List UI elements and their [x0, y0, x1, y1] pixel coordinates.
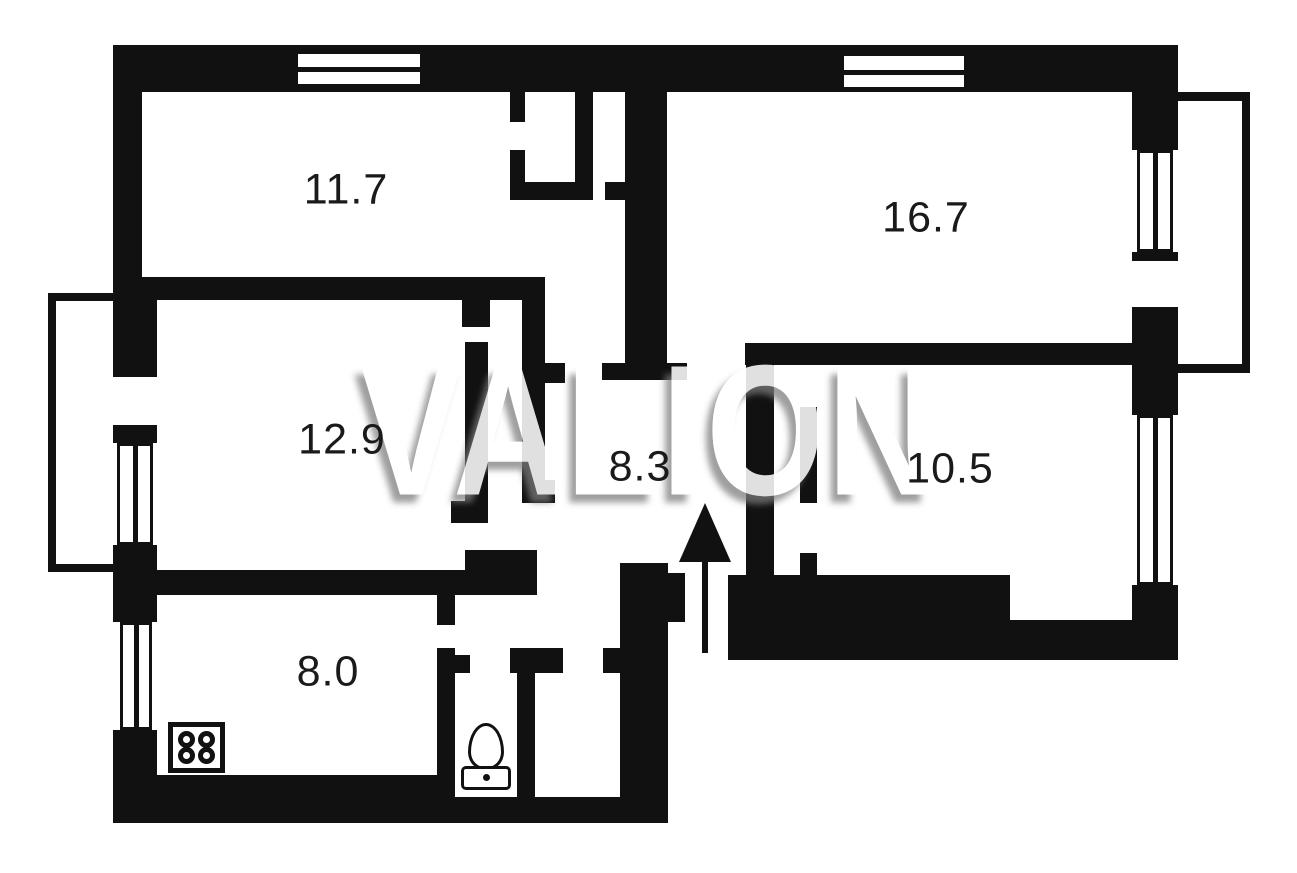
wall-kitchen-east-lower: [437, 648, 455, 797]
window-right-lower-icon: [1137, 415, 1173, 585]
wall-corridor-east: [620, 563, 668, 823]
wall-right-upper: [1132, 92, 1178, 150]
window-pane-divider: [133, 446, 138, 542]
window-pane-divider: [134, 625, 139, 727]
wall-bath-door-frame: [603, 648, 620, 673]
stove-burner-icon: [178, 731, 195, 748]
balcony-right-top: [1178, 92, 1250, 101]
stove-burner-icon: [198, 731, 215, 748]
window-pane-divider: [844, 70, 964, 75]
window-left-middle-icon: [117, 443, 153, 545]
wall-kitchen-door-frame: [455, 655, 470, 673]
wall-10-5-bottom-left: [728, 575, 1010, 660]
window-pane-divider: [1153, 153, 1158, 249]
entrance-arrow-icon: [679, 503, 731, 562]
window-pane-divider: [298, 67, 420, 72]
balcony-right-side: [1242, 92, 1250, 373]
window-top-right-icon: [841, 53, 967, 90]
wall-niche-stub-top: [510, 90, 525, 122]
wall-stub-below-11-7: [462, 298, 490, 327]
balcony-left-side: [48, 293, 56, 572]
window-right-upper-icon: [1137, 150, 1173, 252]
stove-burner-icon: [198, 747, 215, 764]
wall-wc-divider: [517, 670, 535, 797]
wall-top: [113, 45, 1178, 92]
label-room-12-9: 12.9: [298, 416, 386, 465]
label-room-11-7: 11.7: [304, 166, 389, 215]
wall-left-upper: [113, 92, 142, 280]
stove-burner-icon: [178, 747, 195, 764]
window-pane-divider: [1153, 418, 1158, 582]
label-room-10-5: 10.5: [906, 445, 994, 494]
wall-11-7-12-9: [113, 277, 545, 300]
wall-bottom-kitchen: [113, 775, 455, 823]
wall-right-mid: [1132, 307, 1178, 415]
wall-10-5-closet-inner-stub: [800, 553, 817, 575]
wall-right-under-window: [1132, 252, 1178, 261]
wall-niche-right: [575, 90, 593, 200]
window-left-kitchen-icon: [120, 622, 152, 730]
wall-kitchen-east-upper: [437, 595, 455, 625]
wall-niche-stub-east: [605, 182, 625, 200]
wall-entrance-frame: [668, 573, 685, 622]
balcony-left-bottom: [48, 564, 113, 572]
wall-left-below-balcony-door: [113, 425, 157, 443]
toilet-button-icon: [483, 774, 490, 781]
balcony-left-top: [48, 293, 113, 301]
label-room-16-7: 16.7: [882, 194, 970, 243]
wall-12-9-kitchen: [113, 570, 537, 595]
toilet-icon: [468, 723, 504, 770]
label-hall-8-3: 8.3: [609, 443, 672, 492]
entrance-arrow-shaft-icon: [702, 556, 708, 653]
wall-10-5-bottom-right: [1010, 620, 1178, 660]
stove-icon: [168, 722, 225, 773]
wall-wc-top: [510, 648, 563, 673]
balcony-right-bottom: [1178, 364, 1250, 373]
valion-watermark: VALION: [360, 325, 940, 538]
window-top-left-icon: [295, 51, 423, 87]
label-kitchen-8-0: 8.0: [297, 648, 360, 697]
floor-plan: VALION 11.7 16.7 12.9 8.3 10.5 8.0: [0, 0, 1297, 873]
